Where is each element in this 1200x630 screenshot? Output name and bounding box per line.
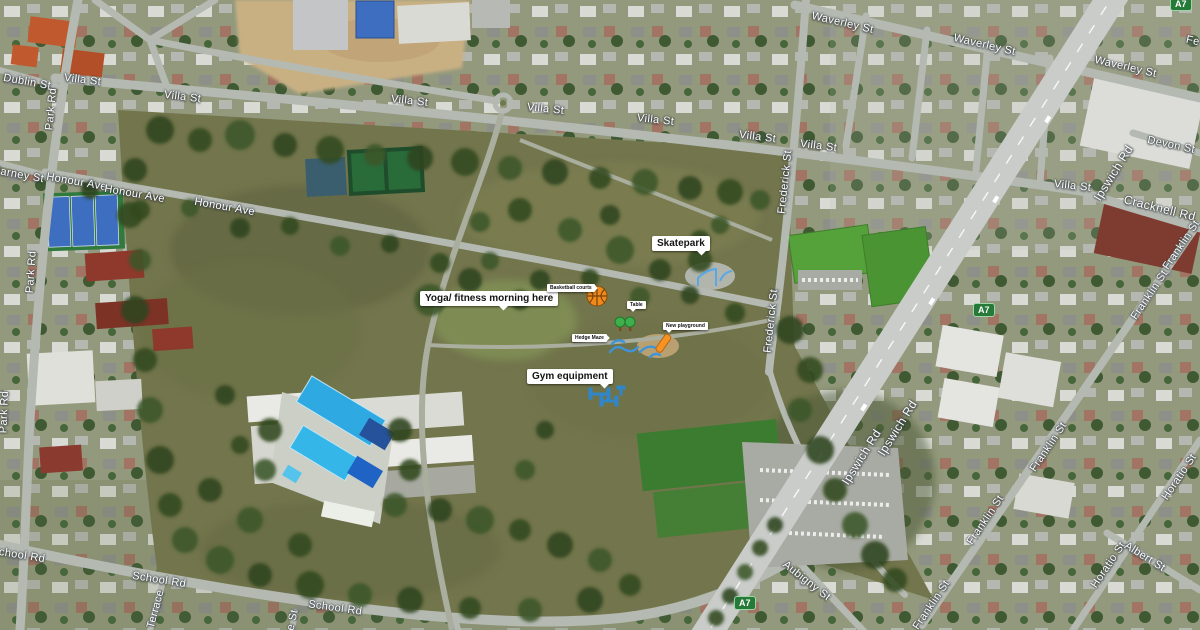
- map-callout-small: Table: [627, 301, 646, 309]
- map-callout-small: Basketball courts: [547, 284, 595, 292]
- map-callout-small: Hedge Maze: [572, 334, 607, 342]
- route-shield-a7: A7: [1170, 0, 1192, 11]
- route-shield-a7: A7: [734, 596, 756, 610]
- map-callout-small: New playground: [663, 322, 708, 330]
- satellite-imagery: [0, 0, 1200, 630]
- map-callout: Gym equipment: [527, 369, 613, 384]
- map-callout: Skatepark: [652, 236, 710, 251]
- map-canvas[interactable]: Dublin StKillarney StPark RdPark RdPark …: [0, 0, 1200, 630]
- map-callout: Yoga/ fitness morning here: [420, 291, 558, 306]
- route-shield-a7: A7: [973, 303, 995, 317]
